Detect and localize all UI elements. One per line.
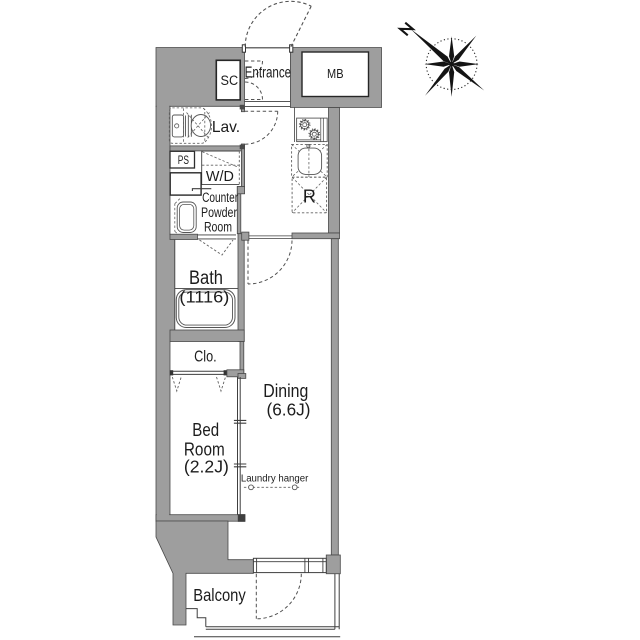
svg-text:Powder: Powder xyxy=(201,205,237,220)
svg-text:Entrance: Entrance xyxy=(245,64,292,81)
svg-text:(1116): (1116) xyxy=(179,287,229,306)
svg-text:SC: SC xyxy=(221,73,239,88)
svg-text:Lav.: Lav. xyxy=(212,119,240,136)
svg-text:Balcony: Balcony xyxy=(193,585,246,605)
svg-text:Dining: Dining xyxy=(263,380,308,401)
svg-text:Bath: Bath xyxy=(189,268,223,289)
svg-text:R: R xyxy=(303,187,316,207)
svg-text:Clo.: Clo. xyxy=(194,349,217,366)
svg-text:W/D: W/D xyxy=(206,168,234,185)
svg-text:Bed: Bed xyxy=(192,419,219,440)
svg-text:Laundry hanger: Laundry hanger xyxy=(241,473,309,484)
svg-text:(6.6J): (6.6J) xyxy=(267,400,311,420)
svg-text:MB: MB xyxy=(327,67,344,81)
svg-text:(2.2J): (2.2J) xyxy=(184,457,229,477)
svg-text:Counter: Counter xyxy=(202,190,238,205)
svg-text:Room: Room xyxy=(204,219,232,234)
svg-text:PS: PS xyxy=(178,155,189,167)
